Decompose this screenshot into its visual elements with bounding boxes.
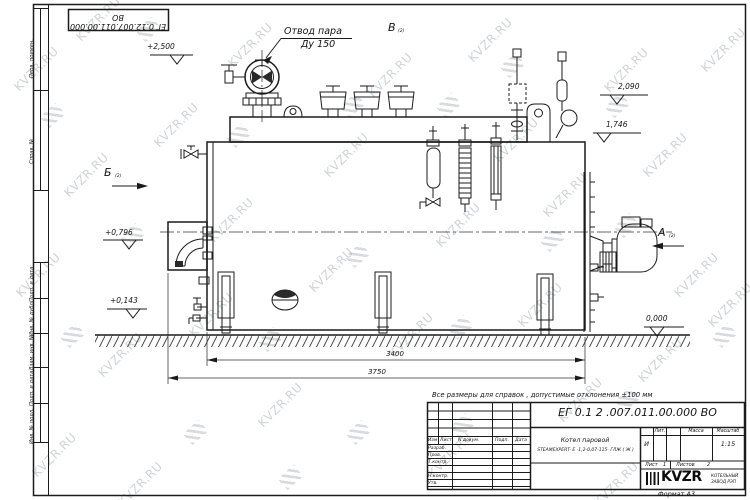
support-legs xyxy=(218,272,553,335)
titleblock-listov-value: 2 xyxy=(707,462,710,468)
dimension-3400: 3400 xyxy=(370,350,420,358)
elevation-2090: 2,090 xyxy=(618,82,639,91)
kvzr-brand-text: KVZR xyxy=(661,469,702,485)
view-label-b: Б xyxy=(104,166,112,179)
steam-outlet-callout-line1: Отвод пара xyxy=(284,26,342,37)
kvzr-brand-sub1: КОТЕЛЬНЫЙ xyxy=(711,473,738,478)
boiler-technical-drawing xyxy=(0,0,750,500)
boiler-body xyxy=(160,104,672,330)
dimension-3750: 3750 xyxy=(352,368,402,376)
view-label-v-ref: (2) xyxy=(398,29,404,34)
sheet-frame xyxy=(34,5,746,496)
titleblock-mass-label: Масса xyxy=(680,429,712,434)
titleblock-col-data: Дата xyxy=(515,438,527,443)
titleblock-doc-name: Котел паровой xyxy=(530,437,640,444)
titleblock-col-podp: Подп. xyxy=(495,438,509,443)
titleblock-lit-label: Лит. xyxy=(640,429,680,434)
titleblock-row-razrab: Разраб. xyxy=(428,446,446,451)
drawing-sheet: KVZR.RU KVZR.RU KVZR.RU KVZR.RU KVZR.RU … xyxy=(0,0,750,500)
elevation-0796: +0,796 xyxy=(105,228,133,237)
titleblock-doc-type: STEAMEXPERT- Е -1,2-0,07-115- ГЛЖ ( Ж ) xyxy=(531,448,640,453)
front-burner-box xyxy=(168,146,212,324)
steam-outlet-callout-line2: Ду 150 xyxy=(301,39,335,50)
titleblock-col-list: Лист xyxy=(440,438,452,443)
titleblock-listov-label: Листов xyxy=(676,462,695,468)
titleblock-col-ndoc: N докум. xyxy=(458,438,479,443)
elevation-1746: 1,746 xyxy=(606,120,627,129)
rear-fan-unit xyxy=(584,172,657,332)
margin-label-inv-podl: Инв. № подл. xyxy=(29,408,35,444)
titleblock-scale-label: Масштаб xyxy=(712,429,744,434)
safety-valves xyxy=(320,86,414,117)
tolerance-note: Все размеры для справок , допустимые отк… xyxy=(432,391,653,399)
margin-label-vzam-inv: Взам. инв. № xyxy=(29,335,35,370)
kvzr-coil-logo-icon xyxy=(646,472,659,485)
margin-label-sprav-no: Справ. № xyxy=(29,139,35,164)
elevation-0000: 0,000 xyxy=(646,314,667,323)
titleblock-lit-value: И xyxy=(640,440,653,448)
level-gauges xyxy=(420,122,501,212)
titleblock-row-nkontr: Н.контр. xyxy=(428,474,449,479)
rotated-designation: ЕГ 0.12.007.011.00.000 ВО xyxy=(69,13,167,31)
view-label-a: А xyxy=(658,226,666,239)
margin-label-podp-data-1: Подп. и дата xyxy=(29,267,35,302)
manhole xyxy=(272,290,298,310)
elevation-2500: +2,500 xyxy=(147,42,175,51)
titleblock-row-tkontr: Т.контр. xyxy=(428,460,448,465)
titleblock-col-izm: Изм xyxy=(428,438,437,443)
kvzr-brand-sub2: ЗАВОД РЭП xyxy=(711,479,736,484)
titleblock-designation: ЕГ 0.1 2 .007.011.00.000 ВО xyxy=(532,406,743,419)
elevation-0143: +0,143 xyxy=(110,296,138,305)
steam-outlet-valve xyxy=(221,39,352,125)
titleblock-scale-value: 1:15 xyxy=(712,440,744,448)
margin-label-perv-primen: Перв. примен. xyxy=(29,39,35,78)
titleblock-list-value: 1 xyxy=(663,462,666,468)
titleblock-row-prov: Пров. xyxy=(428,453,441,458)
ground-hatch xyxy=(95,335,690,347)
margin-stamp-boxes xyxy=(34,9,49,443)
view-label-a-ref: (2) xyxy=(669,234,675,239)
titleblock-row-utv: Утв. xyxy=(428,481,438,486)
format-label: Формат А3 xyxy=(658,490,695,498)
top-fittings xyxy=(509,49,577,140)
view-label-b-ref: (2) xyxy=(115,174,121,179)
view-label-v: В xyxy=(388,21,396,34)
titleblock-list-label: Лист xyxy=(645,462,658,468)
margin-label-podp-data-2: Подп. и дата xyxy=(29,371,35,406)
margin-label-inv-dubl: Инв. № дубл. xyxy=(29,301,35,337)
